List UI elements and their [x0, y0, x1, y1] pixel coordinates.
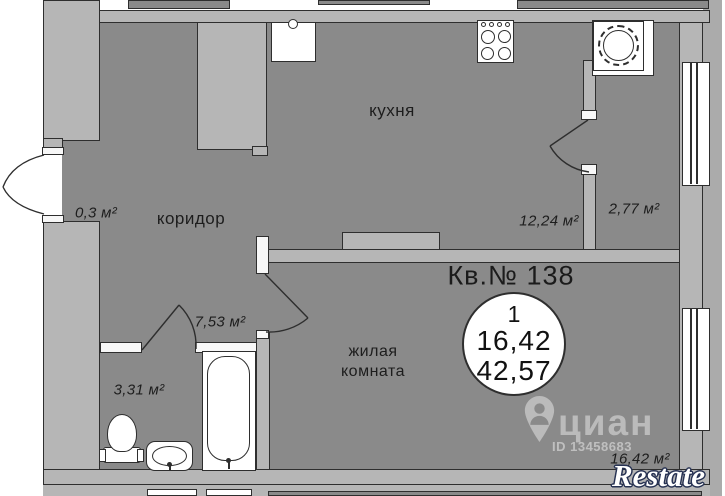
- living-door-swing-arc: [266, 318, 308, 332]
- loggia-door-leaf: [550, 120, 588, 146]
- total-area-value: 42,57: [476, 356, 551, 386]
- room-label-corridor: коридор: [157, 209, 225, 229]
- loggia-door-swing-arc: [550, 146, 589, 172]
- area-label-loggia: 2,77 м²: [609, 201, 660, 218]
- apartment-title: Кв.№ 138: [447, 261, 574, 292]
- area-label-entry: 0,3 м²: [75, 205, 117, 222]
- room-label-living-line2: комната: [341, 362, 405, 382]
- area-label-bathroom: 3,31 м²: [114, 382, 165, 399]
- room-label-living-line1: жилая: [341, 342, 405, 362]
- bathroom-door-swing-arc: [179, 305, 196, 349]
- neighbor-fixture-bottom: [206, 489, 252, 496]
- room-label-living: жилая комната: [341, 342, 405, 382]
- cian-listing-id: ID 13458683: [552, 439, 632, 454]
- rooms-count: 1: [508, 302, 521, 326]
- neighbor-fixture-bottom: [147, 489, 197, 496]
- room-label-kitchen: кухня: [369, 101, 415, 121]
- area-summary-badge: 1 16,42 42,57: [462, 292, 566, 396]
- living-area-value: 16,42: [476, 326, 551, 356]
- bathroom-door-leaf: [142, 305, 179, 350]
- area-label-kitchen: 12,24 м²: [519, 213, 578, 230]
- living-door-leaf: [265, 274, 308, 318]
- floor-plan: кухня коридор 0,3 м² 12,24 м² 2,77 м² 7,…: [0, 0, 725, 496]
- map-pin-person-icon: [524, 396, 555, 442]
- area-label-corridor: 7,53 м²: [195, 314, 246, 331]
- entrance-door-swing-arc: [3, 155, 44, 214]
- cian-watermark: циан: [558, 402, 654, 444]
- restate-logo: Restate: [612, 458, 705, 494]
